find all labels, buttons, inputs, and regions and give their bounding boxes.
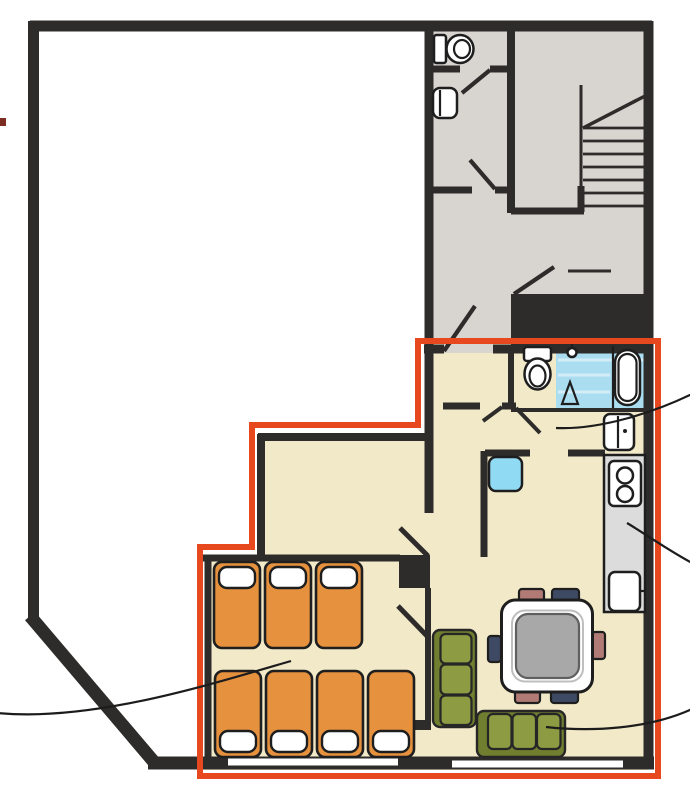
pillow [373, 731, 409, 752]
bed-1 [214, 562, 260, 648]
sofa-cushion [441, 634, 472, 664]
burner-icon [617, 468, 633, 484]
bathtub [615, 350, 640, 405]
floor-plan-canvas [0, 0, 690, 800]
washbasin-common [433, 88, 457, 118]
pillow [271, 731, 307, 752]
washing-machine [489, 457, 522, 491]
sofa-horizontal [477, 711, 565, 757]
sofa-cushion [441, 665, 472, 695]
pillow [321, 567, 357, 588]
pillow [270, 567, 306, 588]
shower-head-icon [568, 348, 577, 357]
sofa-vertical [433, 630, 476, 727]
bed-4 [215, 671, 261, 757]
toilet-unit [524, 347, 551, 390]
washbasin-body [433, 88, 457, 118]
pillow [322, 731, 358, 752]
dining-set [488, 589, 605, 703]
window-bedroom [228, 759, 398, 766]
toilet-tank [434, 35, 446, 63]
kitchen-sink [609, 572, 640, 611]
table-top [516, 614, 579, 678]
sofa-cushion [488, 714, 512, 749]
bed-3 [316, 562, 362, 648]
wall-pier [399, 555, 430, 588]
pillow [219, 567, 255, 588]
pillow [220, 731, 256, 752]
edge-marker [0, 118, 6, 126]
bed-2 [265, 562, 311, 648]
bed-5 [266, 671, 312, 757]
bed-7 [368, 671, 414, 757]
chair-navy [488, 636, 501, 662]
floor-plan-drawing [0, 0, 690, 800]
window-living [452, 761, 623, 768]
sofa-cushion [513, 714, 537, 749]
sofa-cushion [537, 714, 561, 749]
doorway-floor-strip [443, 344, 493, 353]
exterior-wall-diagonal [30, 616, 154, 762]
sofa-cushion [441, 696, 472, 726]
bed-6 [317, 671, 363, 757]
burner-icon [617, 486, 633, 502]
toilet-bowl [525, 359, 551, 390]
toilet-common [434, 35, 474, 63]
vanity-handle [623, 429, 627, 433]
